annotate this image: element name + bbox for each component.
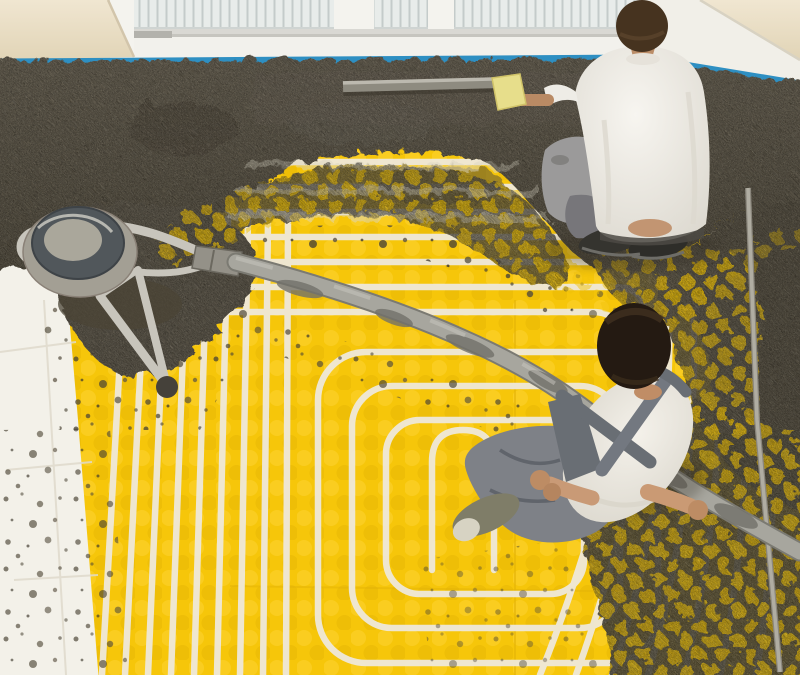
worker-top-head-hair	[616, 0, 668, 52]
window-glass-blinds	[134, 0, 640, 29]
sill-rail	[172, 34, 640, 37]
sill-shadow	[134, 29, 646, 34]
pump-foot	[156, 376, 178, 398]
sill-bracket	[134, 31, 172, 38]
floor-heating-photo: Underfloor heating installation	[0, 0, 800, 675]
worker-bottom-right-hand-on-hose	[688, 500, 708, 520]
worker-top-shirt	[575, 46, 710, 242]
shirt-collar	[626, 53, 660, 65]
splatter-bottom-left	[0, 428, 128, 675]
yellow-float	[492, 74, 526, 110]
worker-top-lower-back-skin	[628, 219, 672, 237]
worker-bottom-left-fist	[543, 483, 561, 501]
window-mullion-right	[428, 0, 454, 29]
window-mullion-left	[334, 0, 374, 29]
photo-stage: Underfloor heating installation	[0, 0, 800, 675]
pump-drum-dust	[44, 219, 102, 261]
pants-stain	[551, 155, 569, 165]
